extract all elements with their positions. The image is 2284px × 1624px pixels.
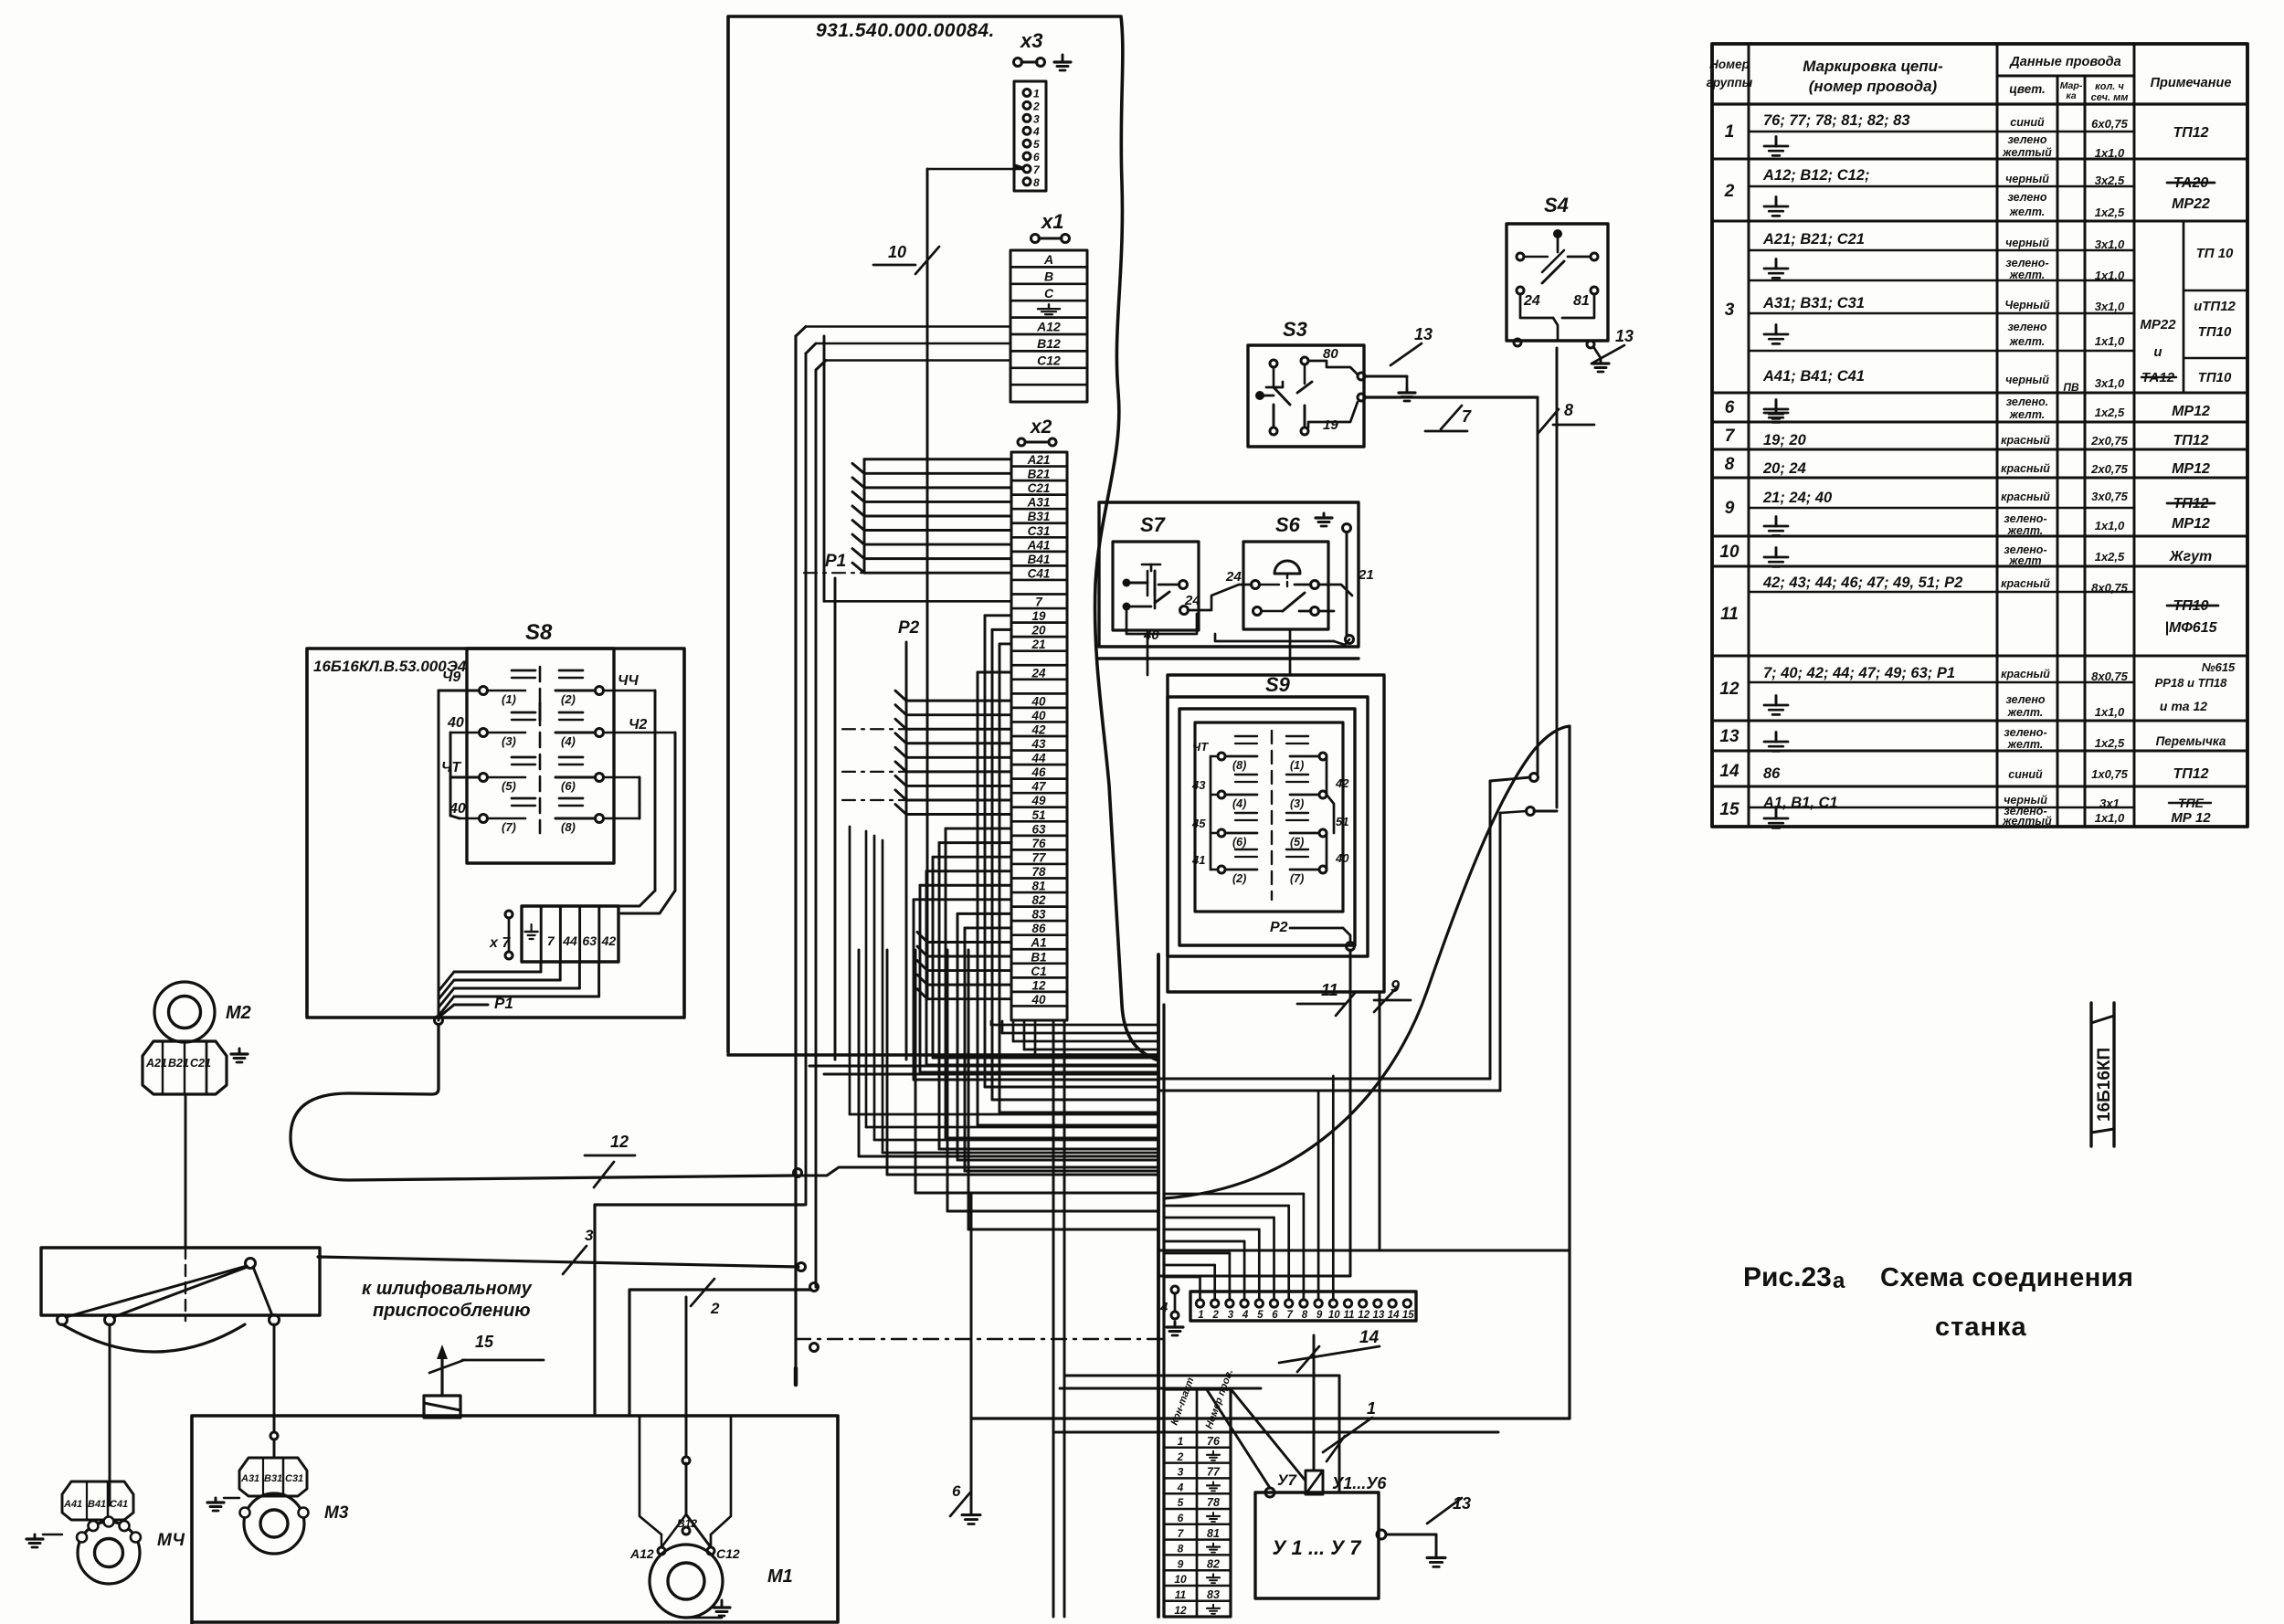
svg-text:(4): (4) [561,734,576,748]
svg-text:1: 1 [1178,1435,1184,1448]
svg-text:(номер провода): (номер провода) [1809,78,1938,95]
svg-text:С31: С31 [1028,524,1051,538]
svg-text:1x2,5: 1x2,5 [2095,550,2125,564]
svg-text:зелено: зелено [2005,693,2045,706]
svg-text:931.540.000.00084.: 931.540.000.00084. [816,20,995,41]
svg-text:А31: А31 [1027,496,1051,510]
svg-text:(7): (7) [1290,872,1304,885]
svg-text:51: 51 [1031,808,1045,822]
svg-text:Рис.23: Рис.23 [1743,1262,1832,1292]
svg-text:(1): (1) [502,692,516,706]
svg-text:(5): (5) [1290,836,1304,849]
svg-text:20; 24: 20; 24 [1762,460,1806,477]
svg-text:11: 11 [1175,1588,1187,1601]
svg-text:(2): (2) [1232,872,1246,885]
svg-text:желт: желт [2008,554,2041,567]
svg-text:42; 43; 44; 46; 47; 49, 51; Р2: 42; 43; 44; 46; 47; 49, 51; Р2 [1762,575,1962,591]
svg-text:3: 3 [1033,112,1040,125]
svg-text:12: 12 [1031,978,1046,992]
svg-text:станка: станка [1935,1313,2027,1342]
svg-text:7; 40; 42; 44; 47; 49; 63; Р1: 7; 40; 42; 44; 47; 49; 63; Р1 [1763,665,1955,681]
svg-text:24: 24 [1225,569,1242,585]
svg-text:12: 12 [1174,1604,1187,1617]
svg-text:82: 82 [1031,893,1046,907]
svg-text:А: А [1043,252,1053,267]
svg-text:S7: S7 [1140,513,1167,536]
svg-text:ТП10: ТП10 [2198,370,2232,385]
svg-text:1x1,0: 1x1,0 [2095,705,2125,719]
svg-text:4: 4 [1177,1481,1184,1493]
svg-text:красный: красный [2001,490,2050,503]
svg-text:(6): (6) [561,779,576,793]
svg-text:МР12: МР12 [2172,516,2210,532]
svg-text:42: 42 [1335,776,1349,790]
svg-text:9: 9 [1178,1557,1184,1570]
svg-text:А12; В12; С12;: А12; В12; С12; [1762,167,1869,184]
svg-text:В: В [1044,269,1053,283]
svg-text:5: 5 [1033,138,1040,151]
svg-text:40: 40 [1335,851,1349,865]
svg-text:3x1,0: 3x1,0 [2095,376,2125,390]
svg-text:13: 13 [1719,727,1739,746]
svg-text:С31: С31 [285,1473,303,1484]
svg-text:С21: С21 [1028,481,1051,495]
svg-text:зелено.: зелено. [2006,395,2049,408]
svg-text:Перемычка: Перемычка [2156,734,2226,748]
svg-text:Данные провода: Данные провода [2008,55,2120,69]
svg-text:желтый: желтый [2002,815,2052,828]
svg-text:1x2,5: 1x2,5 [2095,406,2125,419]
svg-text:16Б16КП: 16Б16КП [2095,1048,2114,1122]
svg-text:М1: М1 [767,1566,793,1587]
svg-text:С41: С41 [1028,566,1051,580]
svg-text:красный: красный [2001,577,2050,590]
svg-text:20: 20 [1031,624,1046,638]
svg-text:21: 21 [1031,638,1045,651]
svg-text:78: 78 [1207,1496,1220,1509]
svg-text:14: 14 [1359,1328,1380,1347]
svg-text:x3: x3 [1020,29,1042,52]
svg-text:Примечание: Примечание [2151,76,2232,90]
svg-text:13: 13 [1615,327,1634,345]
svg-text:51: 51 [1336,815,1348,828]
svg-text:Ч9: Ч9 [442,670,460,685]
svg-text:(1): (1) [1290,759,1304,772]
svg-text:М3: М3 [324,1503,349,1523]
svg-text:Черный: Черный [2004,299,2050,311]
svg-text:81: 81 [1573,293,1590,309]
svg-text:С12: С12 [1037,353,1061,367]
svg-text:86: 86 [1763,765,1781,782]
svg-text:ТП12: ТП12 [2173,433,2208,448]
svg-text:3x1,0: 3x1,0 [2095,237,2125,251]
svg-text:группы: группы [1707,76,1753,90]
svg-text:зелено: зелено [2007,133,2046,146]
svg-text:24: 24 [1523,293,1540,309]
svg-text:черный: черный [2005,374,2049,386]
svg-text:Ч2: Ч2 [629,717,647,733]
svg-text:РР18 и ТП18: РР18 и ТП18 [2155,676,2227,690]
svg-text:зелено-: зелено- [2005,257,2048,269]
svg-text:А21: А21 [1027,453,1051,467]
svg-text:цвет.: цвет. [2009,82,2046,96]
svg-text:45: 45 [1191,817,1206,830]
svg-text:А1, В1, С1: А1, В1, С1 [1762,795,1838,811]
svg-text:зелено: зелено [2007,191,2046,204]
svg-text:10: 10 [1719,543,1739,562]
svg-text:43: 43 [1191,778,1206,792]
svg-text:А12: А12 [1036,320,1061,334]
svg-text:к шлифовальному: к шлифовальному [362,1279,533,1299]
svg-text:и: и [2153,344,2162,360]
svg-text:ЧЧ: ЧЧ [618,673,639,689]
svg-text:83: 83 [1031,908,1046,922]
svg-text:2: 2 [710,1300,720,1317]
svg-text:8: 8 [1033,176,1040,189]
svg-text:10: 10 [1174,1573,1187,1586]
svg-text:сеч. мм: сеч. мм [2091,92,2129,103]
svg-text:7: 7 [1462,407,1472,426]
svg-text:2x0,75: 2x0,75 [2090,434,2129,448]
svg-text:3: 3 [1178,1466,1184,1479]
svg-text:15: 15 [475,1333,494,1351]
svg-text:черный: черный [2005,173,2049,185]
svg-text:С21: С21 [190,1057,211,1070]
svg-text:С: С [1044,286,1054,301]
svg-text:А31; В31; С31: А31; В31; С31 [1762,295,1865,311]
svg-text:Р1: Р1 [494,995,513,1012]
svg-text:P2: P2 [898,618,920,638]
svg-text:кол. ч: кол. ч [2095,81,2124,92]
svg-text:x1: x1 [1041,210,1063,233]
svg-text:Р2: Р2 [1270,920,1288,935]
svg-text:Маркировка цепи-: Маркировка цепи- [1803,58,1943,75]
svg-text:ка: ка [2066,90,2076,101]
svg-text:47: 47 [1031,780,1047,794]
svg-text:2: 2 [1724,182,1735,201]
svg-text:1x2,5: 1x2,5 [2095,206,2125,219]
svg-text:МЧ: МЧ [157,1531,185,1550]
svg-text:Схема соединения: Схема соединения [1880,1263,2133,1292]
svg-text:ТП10: ТП10 [2198,324,2232,340]
svg-text:С1: С1 [1031,965,1046,978]
svg-text:3x0,75: 3x0,75 [2091,490,2129,503]
svg-text:13: 13 [1373,1310,1385,1321]
svg-text:1x0,75: 1x0,75 [2091,767,2129,781]
svg-text:(3): (3) [1290,797,1304,810]
svg-text:76: 76 [1207,1435,1221,1448]
svg-text:40: 40 [1031,993,1046,1007]
svg-text:3: 3 [1725,301,1735,320]
svg-text:9: 9 [1725,499,1735,518]
svg-text:№615: №615 [2202,660,2236,674]
svg-text:МР12: МР12 [2172,461,2210,477]
svg-text:(7): (7) [502,820,516,834]
svg-text:S3: S3 [1283,318,1307,341]
svg-text:зелено-: зелено- [2004,512,2046,525]
svg-text:43: 43 [1031,737,1046,751]
svg-text:1: 1 [1367,1399,1376,1418]
svg-text:7: 7 [1286,1310,1293,1321]
svg-text:1x1,0: 1x1,0 [2095,811,2125,825]
svg-text:40: 40 [447,715,464,731]
svg-text:15: 15 [1719,800,1739,819]
svg-text:2x0,75: 2x0,75 [2090,462,2129,476]
svg-text:3x2,5: 3x2,5 [2095,174,2125,187]
svg-text:76; 77; 78; 81; 82; 83: 76; 77; 78; 81; 82; 83 [1763,112,1910,129]
svg-text:9: 9 [1316,1310,1323,1321]
svg-text:77: 77 [1031,850,1047,864]
svg-text:5: 5 [1178,1496,1184,1509]
svg-text:44: 44 [1031,752,1046,765]
svg-text:6: 6 [1272,1310,1278,1321]
svg-text:зелено: зелено [2007,321,2046,333]
svg-text:63: 63 [582,933,597,948]
svg-text:4: 4 [1159,1300,1168,1315]
svg-text:МР 12: МР 12 [2171,810,2211,826]
svg-text:3x1,0: 3x1,0 [2095,300,2125,313]
svg-text:80: 80 [1323,346,1338,362]
svg-text:В12: В12 [677,1517,697,1530]
svg-text:черный: черный [2005,237,2049,249]
svg-text:А41: А41 [1027,538,1051,552]
svg-text:А41: А41 [63,1499,82,1510]
svg-text:1x1,0: 1x1,0 [2095,269,2125,282]
svg-text:42: 42 [601,933,617,948]
svg-text:1x1,0: 1x1,0 [2095,519,2125,533]
svg-text:6: 6 [952,1482,961,1500]
svg-text:4: 4 [1242,1310,1249,1321]
svg-text:40: 40 [1031,709,1046,722]
svg-text:4: 4 [1032,125,1040,138]
svg-text:М2: М2 [226,1003,251,1023]
svg-text:12: 12 [1719,680,1739,699]
svg-text:6: 6 [1178,1512,1184,1524]
svg-text:1: 1 [1033,88,1040,100]
svg-text:3: 3 [1228,1310,1234,1321]
svg-text:МР12: МР12 [2172,404,2210,419]
svg-text:14: 14 [1719,762,1739,781]
svg-text:19: 19 [1031,609,1046,623]
svg-text:S9: S9 [1265,673,1291,696]
svg-text:3x1: 3x1 [2099,796,2120,810]
svg-text:10: 10 [1328,1310,1340,1321]
svg-text:2: 2 [1177,1450,1184,1463]
svg-text:8: 8 [1564,401,1573,419]
svg-text:1: 1 [1198,1310,1203,1321]
svg-text:11: 11 [1344,1310,1355,1321]
svg-text:81: 81 [1207,1527,1220,1540]
svg-text:(4): (4) [1232,797,1246,810]
svg-text:S6: S6 [1275,513,1301,536]
svg-text:иТП12: иТП12 [2194,299,2236,314]
svg-text:10: 10 [888,243,906,261]
svg-text:14: 14 [1388,1310,1400,1321]
svg-text:желтый: желтый [2002,146,2052,159]
svg-text:S8: S8 [525,620,553,645]
svg-text:19: 19 [1323,417,1338,433]
svg-text:2: 2 [1211,1310,1219,1321]
svg-text:8x0,75: 8x0,75 [2091,670,2129,683]
svg-text:МР22: МР22 [2140,317,2176,332]
svg-text:желт.: желт. [2009,408,2046,421]
svg-text:Номер: Номер [1709,58,1750,71]
svg-text:6x0,75: 6x0,75 [2091,117,2129,131]
svg-text:С12: С12 [716,1546,740,1561]
svg-text:P1: P1 [825,552,846,571]
svg-text:(8): (8) [1232,759,1246,772]
svg-text:6: 6 [1033,151,1040,163]
svg-text:В31: В31 [1028,510,1051,523]
svg-text:ПВ: ПВ [2063,381,2079,394]
svg-text:6: 6 [1725,398,1735,417]
svg-text:21; 24; 40: 21; 24; 40 [1762,490,1833,506]
svg-text:и та 12: и та 12 [2160,699,2207,713]
svg-text:40: 40 [1031,694,1046,708]
svg-text:49: 49 [1031,794,1046,807]
svg-text:А21: А21 [145,1057,167,1070]
svg-text:синий: синий [2008,768,2043,781]
svg-text:А1: А1 [1030,936,1046,950]
svg-text:S4: S4 [1544,194,1569,216]
svg-text:красный: красный [2001,434,2050,447]
svg-text:24: 24 [1184,593,1200,608]
svg-text:1x1,0: 1x1,0 [2095,146,2125,160]
svg-text:А31: А31 [240,1473,259,1484]
svg-text:А12: А12 [629,1546,654,1561]
svg-text:В31: В31 [264,1473,282,1484]
svg-text:желт.: желт. [2007,706,2044,719]
svg-text:ЧТ: ЧТ [1192,740,1209,754]
svg-text:3: 3 [585,1227,594,1244]
svg-text:(5): (5) [502,779,516,793]
svg-text:76: 76 [1031,837,1046,850]
svg-text:19; 20: 19; 20 [1763,432,1807,448]
svg-text:а: а [1833,1269,1845,1293]
svg-text:78: 78 [1031,865,1046,879]
svg-text:46: 46 [1031,765,1046,779]
svg-text:МР22: МР22 [2172,196,2210,212]
svg-text:(8): (8) [561,820,576,834]
svg-text:81: 81 [1031,880,1045,893]
svg-text:12: 12 [610,1133,629,1151]
svg-text:11: 11 [1720,605,1739,624]
svg-text:13: 13 [1414,325,1433,343]
svg-text:ТП12: ТП12 [2173,766,2208,782]
svg-text:красный: красный [2001,668,2050,680]
svg-text:(2): (2) [561,692,576,706]
svg-text:41: 41 [1191,853,1205,867]
svg-text:В41: В41 [88,1499,106,1510]
svg-text:ТП12: ТП12 [2173,125,2208,141]
svg-text:ТП 10: ТП 10 [2196,246,2234,261]
svg-text:А41; В41; С41: А41; В41; С41 [1762,368,1865,385]
svg-text:(3): (3) [502,734,516,748]
svg-text:(6): (6) [1232,836,1246,849]
svg-text:желт.: желт. [2009,206,2046,218]
svg-text:желт.: желт. [2009,269,2046,281]
svg-text:Жгут: Жгут [2169,549,2213,564]
svg-text:8: 8 [1178,1543,1184,1555]
svg-text:15: 15 [1402,1310,1414,1321]
svg-text:63: 63 [1031,822,1046,836]
svg-text:8: 8 [1302,1310,1308,1321]
svg-text:40: 40 [1143,627,1159,643]
svg-text:24: 24 [1031,666,1046,680]
svg-text:11: 11 [1321,981,1338,999]
svg-text:2: 2 [1032,100,1040,112]
svg-text:5: 5 [1257,1310,1264,1321]
svg-text:красный: красный [2001,462,2050,475]
svg-text:1x1,0: 1x1,0 [2095,334,2125,348]
svg-text:x2: x2 [1030,417,1052,438]
svg-text:В41: В41 [1028,553,1051,566]
svg-text:В12: В12 [1037,336,1061,351]
svg-text:7: 7 [547,933,555,948]
svg-text:желт.: желт. [2007,738,2044,751]
svg-text:8: 8 [1725,455,1735,474]
svg-text:приспособлению: приспособлению [373,1301,531,1321]
svg-text:зелено-: зелено- [2004,726,2046,739]
svg-text:желт.: желт. [2009,335,2046,348]
svg-text:44: 44 [562,933,577,948]
svg-text:86: 86 [1031,922,1046,935]
svg-text:У7: У7 [1277,1471,1298,1489]
svg-text:1x2,5: 1x2,5 [2095,736,2125,750]
svg-text:1: 1 [1725,122,1735,142]
svg-text:В21: В21 [168,1057,189,1070]
svg-text:42: 42 [1031,722,1046,736]
svg-text:12: 12 [1358,1310,1369,1321]
svg-text:С41: С41 [110,1499,128,1510]
svg-text:8x0,75: 8x0,75 [2091,581,2129,595]
svg-text:синий: синий [2010,116,2045,129]
svg-text:77: 77 [1207,1466,1221,1479]
svg-text:В21: В21 [1028,468,1051,481]
svg-text:|МФ615: |МФ615 [2165,620,2218,636]
svg-text:В1: В1 [1031,950,1046,964]
svg-text:У 1 ... У 7: У 1 ... У 7 [1272,1536,1362,1559]
svg-text:83: 83 [1207,1588,1220,1601]
svg-text:желт.: желт. [2007,524,2044,537]
svg-text:7: 7 [1725,427,1736,446]
svg-text:А21; В21; С21: А21; В21; С21 [1762,231,1865,248]
svg-text:21: 21 [1358,567,1374,583]
svg-text:82: 82 [1207,1557,1220,1570]
